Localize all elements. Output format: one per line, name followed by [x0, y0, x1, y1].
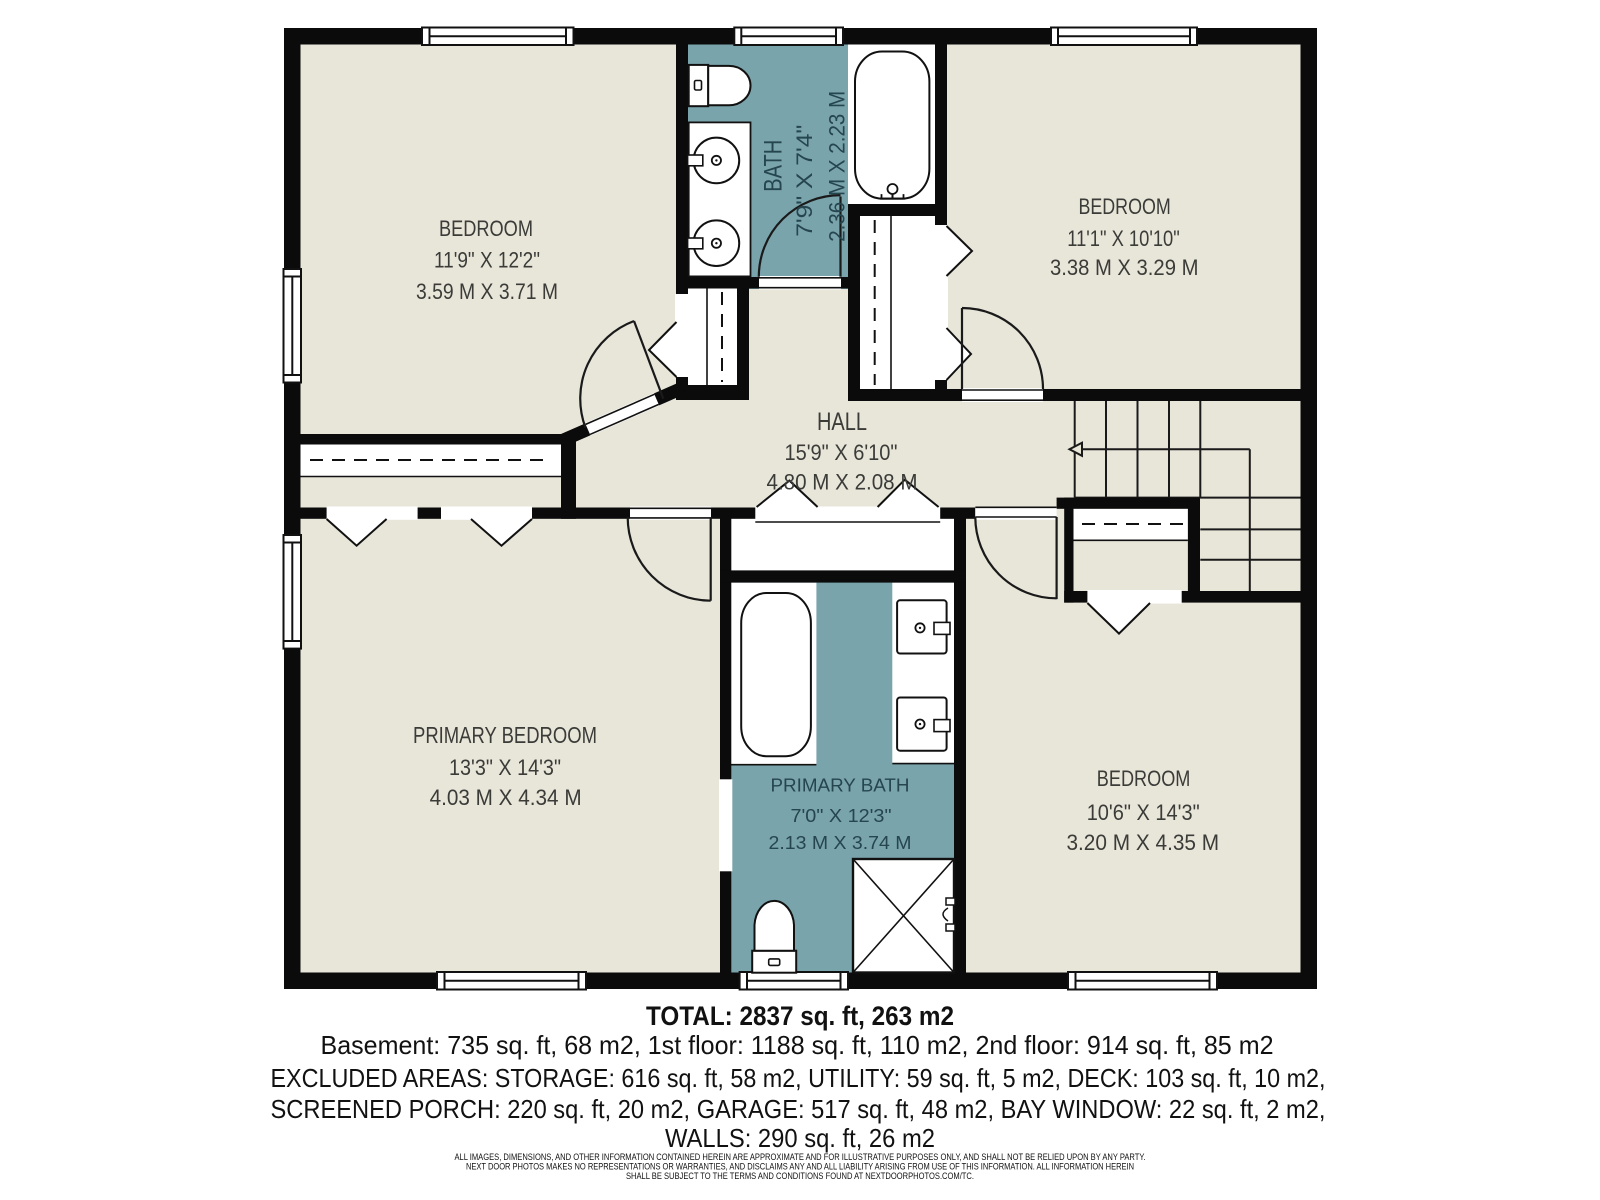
svg-text:BEDROOM: BEDROOM: [1097, 766, 1191, 791]
svg-text:4.03 M X 4.34 M: 4.03 M X 4.34 M: [430, 785, 582, 810]
svg-text:3.20 M X 4.35 M: 3.20 M X 4.35 M: [1066, 830, 1219, 855]
svg-text:PRIMARY BEDROOM: PRIMARY BEDROOM: [413, 722, 597, 748]
svg-text:WALLS: 290 sq. ft, 26 m2: WALLS: 290 sq. ft, 26 m2: [665, 1123, 935, 1153]
svg-text:SCREENED PORCH: 220 sq. ft, 20: SCREENED PORCH: 220 sq. ft, 20 m2, GARAG…: [271, 1094, 1326, 1124]
svg-text:4.80 M X 2.08 M: 4.80 M X 2.08 M: [767, 470, 918, 495]
svg-text:7'9" X 7'4": 7'9" X 7'4": [792, 125, 817, 237]
svg-text:3.59 M X 3.71 M: 3.59 M X 3.71 M: [416, 279, 558, 304]
svg-text:BEDROOM: BEDROOM: [1078, 194, 1170, 219]
svg-text:3.38 M X 3.29 M: 3.38 M X 3.29 M: [1050, 255, 1199, 280]
svg-text:2.36 M X 2.23 M: 2.36 M X 2.23 M: [825, 91, 850, 242]
svg-text:BATH: BATH: [760, 140, 788, 192]
svg-text:11'1" X 10'10": 11'1" X 10'10": [1067, 226, 1180, 251]
svg-text:7'0" X 12'3": 7'0" X 12'3": [791, 806, 892, 826]
svg-text:15'9" X 6'10": 15'9" X 6'10": [785, 440, 898, 465]
svg-text:13'3" X 14'3": 13'3" X 14'3": [449, 755, 561, 780]
svg-text:EXCLUDED AREAS: STORAGE: 616 s: EXCLUDED AREAS: STORAGE: 616 sq. ft, 58 …: [271, 1063, 1326, 1093]
svg-text:SHALL BE SUBJECT TO THE TERMS: SHALL BE SUBJECT TO THE TERMS AND CONDIT…: [626, 1171, 974, 1182]
svg-text:HALL: HALL: [817, 408, 867, 436]
svg-text:11'9" X 12'2": 11'9" X 12'2": [434, 248, 540, 273]
svg-text:2.13 M X 3.74 M: 2.13 M X 3.74 M: [769, 833, 912, 853]
svg-text:Basement: 735 sq. ft, 68 m2, 1: Basement: 735 sq. ft, 68 m2, 1st floor: …: [321, 1030, 1274, 1060]
svg-text:10'6" X 14'3": 10'6" X 14'3": [1087, 800, 1200, 825]
svg-text:PRIMARY BATH: PRIMARY BATH: [771, 776, 910, 796]
svg-text:TOTAL: 2837 sq. ft, 263 m2: TOTAL: 2837 sq. ft, 263 m2: [646, 1001, 954, 1031]
svg-text:BEDROOM: BEDROOM: [439, 216, 533, 241]
